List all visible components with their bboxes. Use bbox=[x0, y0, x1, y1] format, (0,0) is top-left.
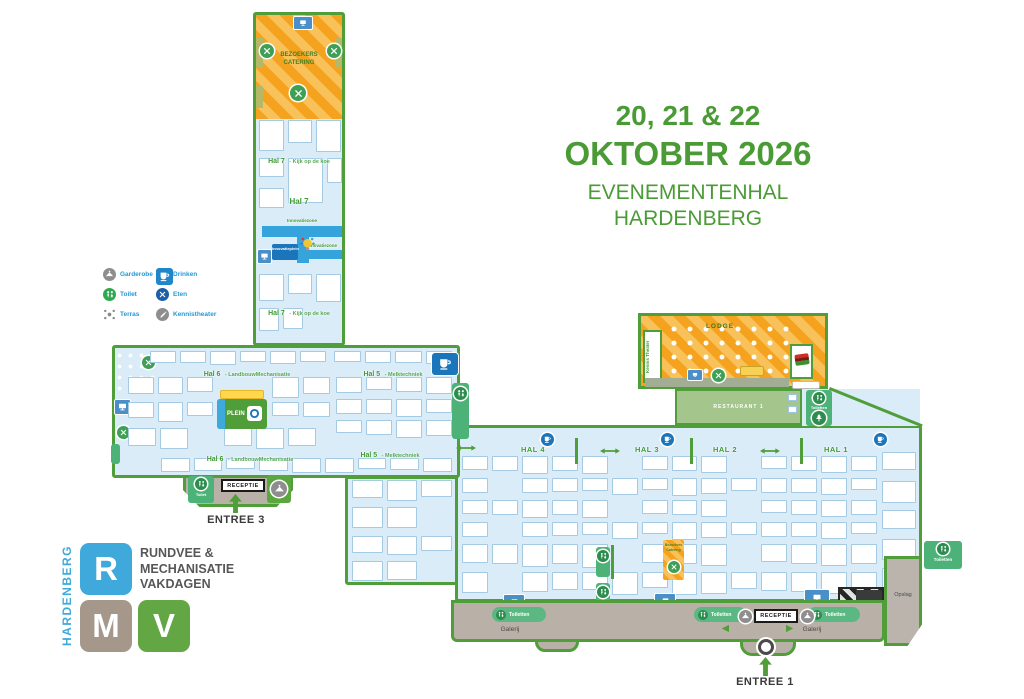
terras-legend-label: Terras bbox=[120, 311, 139, 318]
booth bbox=[582, 456, 608, 474]
kennistheater-legend-icon bbox=[156, 308, 169, 321]
booth bbox=[761, 478, 787, 493]
booth bbox=[426, 420, 452, 436]
stage-sign bbox=[740, 366, 764, 376]
booth bbox=[316, 120, 341, 152]
booth bbox=[240, 351, 266, 362]
booth bbox=[821, 522, 847, 539]
booth bbox=[761, 544, 787, 562]
booth bbox=[180, 351, 206, 363]
entree1-label: ENTREE 1 bbox=[716, 676, 814, 688]
toiletten-label: Toiletten bbox=[924, 557, 962, 562]
garderobe-icon bbox=[271, 481, 287, 497]
booth bbox=[612, 522, 638, 539]
booth bbox=[731, 572, 757, 589]
booth bbox=[288, 120, 313, 143]
garderobe-legend-label: Garderobe bbox=[120, 271, 153, 278]
booth bbox=[462, 500, 488, 514]
booth bbox=[642, 522, 668, 535]
booth bbox=[522, 544, 548, 567]
walkway-arrow-left bbox=[720, 624, 729, 633]
booth bbox=[701, 478, 727, 495]
kennistheater-icon bbox=[687, 369, 703, 381]
plein-label: PLEIN bbox=[227, 411, 245, 417]
entree1-arrow bbox=[759, 657, 772, 676]
plein-icon bbox=[247, 406, 262, 421]
toilet-strip bbox=[111, 444, 120, 464]
booth bbox=[642, 500, 668, 514]
booth bbox=[761, 572, 787, 592]
booth bbox=[365, 351, 392, 363]
booth bbox=[522, 456, 548, 474]
booth bbox=[701, 572, 727, 594]
booth bbox=[552, 522, 578, 536]
booth bbox=[492, 456, 518, 471]
entree3-label: ENTREE 3 bbox=[194, 514, 278, 526]
drinken-icon bbox=[661, 433, 674, 446]
booth bbox=[128, 377, 154, 394]
booth bbox=[791, 456, 817, 471]
booth bbox=[395, 351, 422, 363]
booth bbox=[462, 522, 488, 538]
booth bbox=[882, 452, 916, 470]
bezoekers-catering-booth-label: Bezoekers Catering bbox=[663, 543, 684, 552]
bar-booth bbox=[790, 344, 813, 379]
event-venue-line2: HARDENBERG bbox=[538, 206, 838, 232]
booth bbox=[387, 480, 418, 501]
event-title: 20, 21 & 22 OKTOBER 2026 EVENEMENTENHAL … bbox=[538, 98, 838, 232]
booth bbox=[582, 500, 608, 518]
booth bbox=[462, 544, 488, 563]
booth bbox=[336, 420, 362, 433]
booth-grid bbox=[128, 428, 316, 450]
toiletten-box-right: Toiletten bbox=[924, 541, 962, 569]
booth bbox=[387, 536, 418, 555]
booth bbox=[288, 274, 313, 294]
booth-grid bbox=[352, 480, 452, 530]
booth bbox=[882, 481, 916, 503]
receptie-badge: RECEPTIE bbox=[754, 609, 798, 623]
booth bbox=[672, 456, 698, 471]
galerij-label: Galerij bbox=[480, 626, 540, 633]
eten-icon bbox=[327, 44, 341, 58]
hal1-label: HAL 1 bbox=[808, 445, 864, 454]
booth bbox=[821, 456, 847, 473]
lodge-tables bbox=[666, 322, 790, 378]
booth bbox=[352, 507, 383, 529]
toilet-icon bbox=[454, 387, 467, 400]
drinken-icon bbox=[541, 433, 554, 446]
booth bbox=[396, 399, 422, 417]
booth-grid bbox=[336, 377, 452, 439]
booth bbox=[426, 399, 452, 413]
toilet-corridor bbox=[452, 383, 469, 439]
booth bbox=[366, 399, 392, 414]
booth bbox=[300, 351, 326, 362]
event-venue-line1: EVENEMENTENHAL bbox=[538, 180, 838, 206]
booth bbox=[352, 561, 383, 581]
eten-icon bbox=[668, 561, 680, 573]
rmv-logo: HARDENBERG R RUNDVEE & MECHANISATIE VAKD… bbox=[58, 538, 238, 653]
booth bbox=[851, 572, 877, 589]
garderobe-icon bbox=[739, 610, 752, 623]
booth bbox=[701, 544, 727, 566]
booth bbox=[582, 522, 608, 536]
hal2-label: HAL 2 bbox=[697, 445, 753, 454]
entree3-arrow bbox=[229, 494, 242, 513]
toilet-icon bbox=[496, 610, 506, 620]
toilet-icon bbox=[937, 543, 949, 555]
toilet-legend-label: Toilet bbox=[120, 291, 137, 298]
booth bbox=[791, 522, 817, 537]
booth bbox=[552, 456, 578, 471]
opslag-area bbox=[884, 556, 922, 646]
booth bbox=[421, 480, 452, 497]
booth bbox=[761, 500, 787, 513]
plein-side-tab bbox=[217, 399, 225, 429]
walkway-arrow bbox=[456, 444, 476, 452]
hal4-label: HAL 4 bbox=[505, 445, 561, 454]
booth bbox=[821, 478, 847, 495]
toiletten-badge: Toiletten bbox=[492, 607, 546, 622]
plein-banner bbox=[220, 390, 264, 399]
booth bbox=[421, 536, 452, 551]
booth bbox=[851, 522, 877, 535]
tree-icon bbox=[812, 411, 826, 425]
restaurant-label: RESTAURANT 1 bbox=[713, 404, 763, 410]
eten-icon bbox=[712, 369, 725, 382]
eten-legend-label: Eten bbox=[173, 291, 187, 298]
kennistheater-icon bbox=[293, 16, 313, 30]
hall-divider-wall bbox=[575, 438, 578, 464]
booth bbox=[761, 522, 787, 537]
booth bbox=[462, 572, 488, 593]
booth bbox=[522, 500, 548, 518]
booth-grid bbox=[352, 536, 452, 582]
booth bbox=[552, 572, 578, 591]
hall-divider-wall bbox=[611, 545, 614, 579]
hal5-label: Hal 5 - Melktechniek bbox=[330, 444, 450, 462]
booth-grid bbox=[462, 500, 877, 540]
booth bbox=[552, 500, 578, 515]
booth bbox=[522, 572, 548, 593]
entree3-toilet-box: Toilet bbox=[188, 476, 214, 503]
hal6-label: Hal 6 - LandbouwMechanisatie bbox=[162, 363, 332, 381]
walkway-arrow-right bbox=[786, 624, 795, 633]
toiletten-label: Toiletten bbox=[806, 405, 832, 410]
booth bbox=[672, 522, 698, 540]
restaurant-area: RESTAURANT 1 bbox=[675, 389, 802, 425]
booth bbox=[851, 456, 877, 471]
hal6-label: Hal 6 - LandbouwMechanisatie bbox=[165, 448, 335, 466]
booth bbox=[582, 478, 608, 492]
opslag-label: Opslag bbox=[884, 592, 922, 598]
garderobe-legend-icon bbox=[103, 268, 116, 281]
booth bbox=[701, 522, 727, 539]
toilet-icon bbox=[813, 392, 825, 404]
booth bbox=[522, 478, 548, 494]
booth bbox=[366, 420, 392, 435]
hal7-label: Hal 7 bbox=[254, 191, 344, 209]
hal7-koe-label: Hal 7 - Kijk op de koe bbox=[254, 302, 344, 320]
logo-city-vertical: HARDENBERG bbox=[60, 540, 74, 650]
hal3-label: HAL 3 bbox=[619, 445, 675, 454]
logo-letter-r: R bbox=[80, 543, 132, 595]
bezoekers-catering-label: BEZOEKERS CATERING bbox=[269, 52, 329, 68]
entree1-door bbox=[758, 639, 774, 655]
booth-grid bbox=[259, 274, 341, 302]
innovatiezone-label: Innovatiezone bbox=[262, 218, 342, 223]
booth bbox=[851, 544, 877, 564]
booth bbox=[128, 428, 156, 446]
booth bbox=[672, 478, 698, 496]
booth bbox=[352, 536, 383, 553]
booth bbox=[150, 351, 176, 363]
booth bbox=[462, 478, 488, 494]
booth bbox=[160, 428, 188, 449]
booth bbox=[272, 402, 299, 417]
booth-grid bbox=[462, 456, 877, 496]
booth bbox=[791, 544, 817, 564]
bar-logo bbox=[794, 353, 809, 366]
booth bbox=[761, 456, 787, 469]
door bbox=[788, 406, 797, 413]
booth bbox=[731, 478, 757, 491]
event-month-year: OKTOBER 2026 bbox=[538, 134, 838, 174]
booth-grid bbox=[128, 377, 213, 423]
booth bbox=[851, 478, 877, 491]
entree3-garderobe-box bbox=[267, 475, 291, 503]
booth bbox=[821, 500, 847, 517]
eten-icon bbox=[290, 85, 306, 101]
toilet-strip bbox=[596, 547, 610, 577]
booth bbox=[387, 561, 418, 581]
booth bbox=[791, 478, 817, 493]
catering-side-tab bbox=[256, 86, 263, 108]
booth bbox=[882, 510, 916, 529]
toilet-label: Toilet bbox=[188, 492, 214, 497]
kennistheater-room: Kennis Theater bbox=[643, 330, 662, 383]
booth bbox=[396, 420, 422, 437]
booth bbox=[259, 120, 284, 151]
booth bbox=[552, 478, 578, 492]
toilet-icon bbox=[597, 550, 609, 562]
innovation-lightbulb-icon bbox=[299, 236, 316, 253]
garderobe-icon bbox=[801, 610, 814, 623]
booth bbox=[552, 544, 578, 564]
bar-sign bbox=[792, 381, 820, 389]
booth bbox=[791, 500, 817, 515]
hall-divider-wall bbox=[690, 438, 693, 464]
booth bbox=[336, 399, 362, 414]
booth bbox=[303, 402, 330, 417]
kennistheater-legend-label: Kennistheater bbox=[173, 311, 216, 318]
booth-grid bbox=[259, 120, 341, 152]
booth bbox=[731, 522, 757, 535]
booth bbox=[492, 500, 518, 515]
hal5-label: Hal 5 - Melktechniek bbox=[333, 363, 453, 381]
booth bbox=[334, 351, 361, 362]
kennistheater-icon bbox=[257, 249, 272, 264]
booth bbox=[224, 428, 252, 446]
toilet-icon bbox=[698, 610, 708, 620]
booth bbox=[128, 402, 154, 419]
logo-tagline: RUNDVEE & MECHANISATIE VAKDAGEN bbox=[140, 546, 238, 593]
floor-plan-map: BEZOEKERS CATERING Hal 7 - Kijk op de ko… bbox=[0, 0, 1024, 699]
receptie-badge: RECEPTIE bbox=[221, 479, 265, 492]
walkway-arrow bbox=[600, 447, 620, 455]
eten-icon bbox=[260, 44, 274, 58]
toilet-icon bbox=[195, 478, 207, 490]
toilet-icon bbox=[597, 586, 609, 598]
booth-grid bbox=[272, 377, 330, 423]
drinken-icon bbox=[874, 433, 887, 446]
toiletten-badge: Toiletten bbox=[808, 607, 860, 622]
booth bbox=[851, 500, 877, 515]
booth bbox=[187, 402, 213, 417]
booth bbox=[642, 456, 668, 470]
booth bbox=[158, 402, 184, 422]
toiletten-box: Toiletten bbox=[806, 390, 832, 426]
booth bbox=[612, 478, 638, 495]
innovatieplein-box: Innovatieplein bbox=[272, 244, 298, 260]
booth bbox=[701, 456, 727, 473]
drinken-legend-label: Drinken bbox=[173, 271, 197, 278]
hall-divider-wall bbox=[800, 438, 803, 464]
hal7-koe-label: Hal 7 - Kijk op de koe bbox=[254, 150, 344, 168]
walkway-arrow bbox=[760, 447, 780, 455]
drinken-legend-icon bbox=[156, 268, 173, 285]
booth bbox=[492, 544, 518, 564]
door bbox=[788, 394, 797, 401]
booth bbox=[270, 351, 296, 364]
booth bbox=[259, 274, 284, 301]
booth bbox=[672, 500, 698, 515]
booth bbox=[288, 428, 316, 446]
booth bbox=[612, 572, 638, 595]
lodge-label: LODGE bbox=[698, 323, 742, 330]
eten-legend-icon bbox=[156, 288, 169, 301]
booth bbox=[256, 428, 284, 449]
event-dates: 20, 21 & 22 bbox=[538, 98, 838, 134]
booth bbox=[522, 522, 548, 538]
booth bbox=[387, 507, 418, 528]
terras-legend-icon bbox=[103, 308, 116, 321]
toilet-legend-icon bbox=[103, 288, 116, 301]
logo-letter-v: V bbox=[138, 600, 190, 652]
booth bbox=[821, 544, 847, 566]
booth bbox=[701, 500, 727, 517]
booth bbox=[316, 274, 341, 302]
plein-box: PLEIN bbox=[217, 399, 267, 429]
booth bbox=[352, 480, 383, 498]
booth bbox=[642, 478, 668, 491]
logo-letter-m: M bbox=[80, 600, 132, 652]
booth bbox=[462, 456, 488, 470]
